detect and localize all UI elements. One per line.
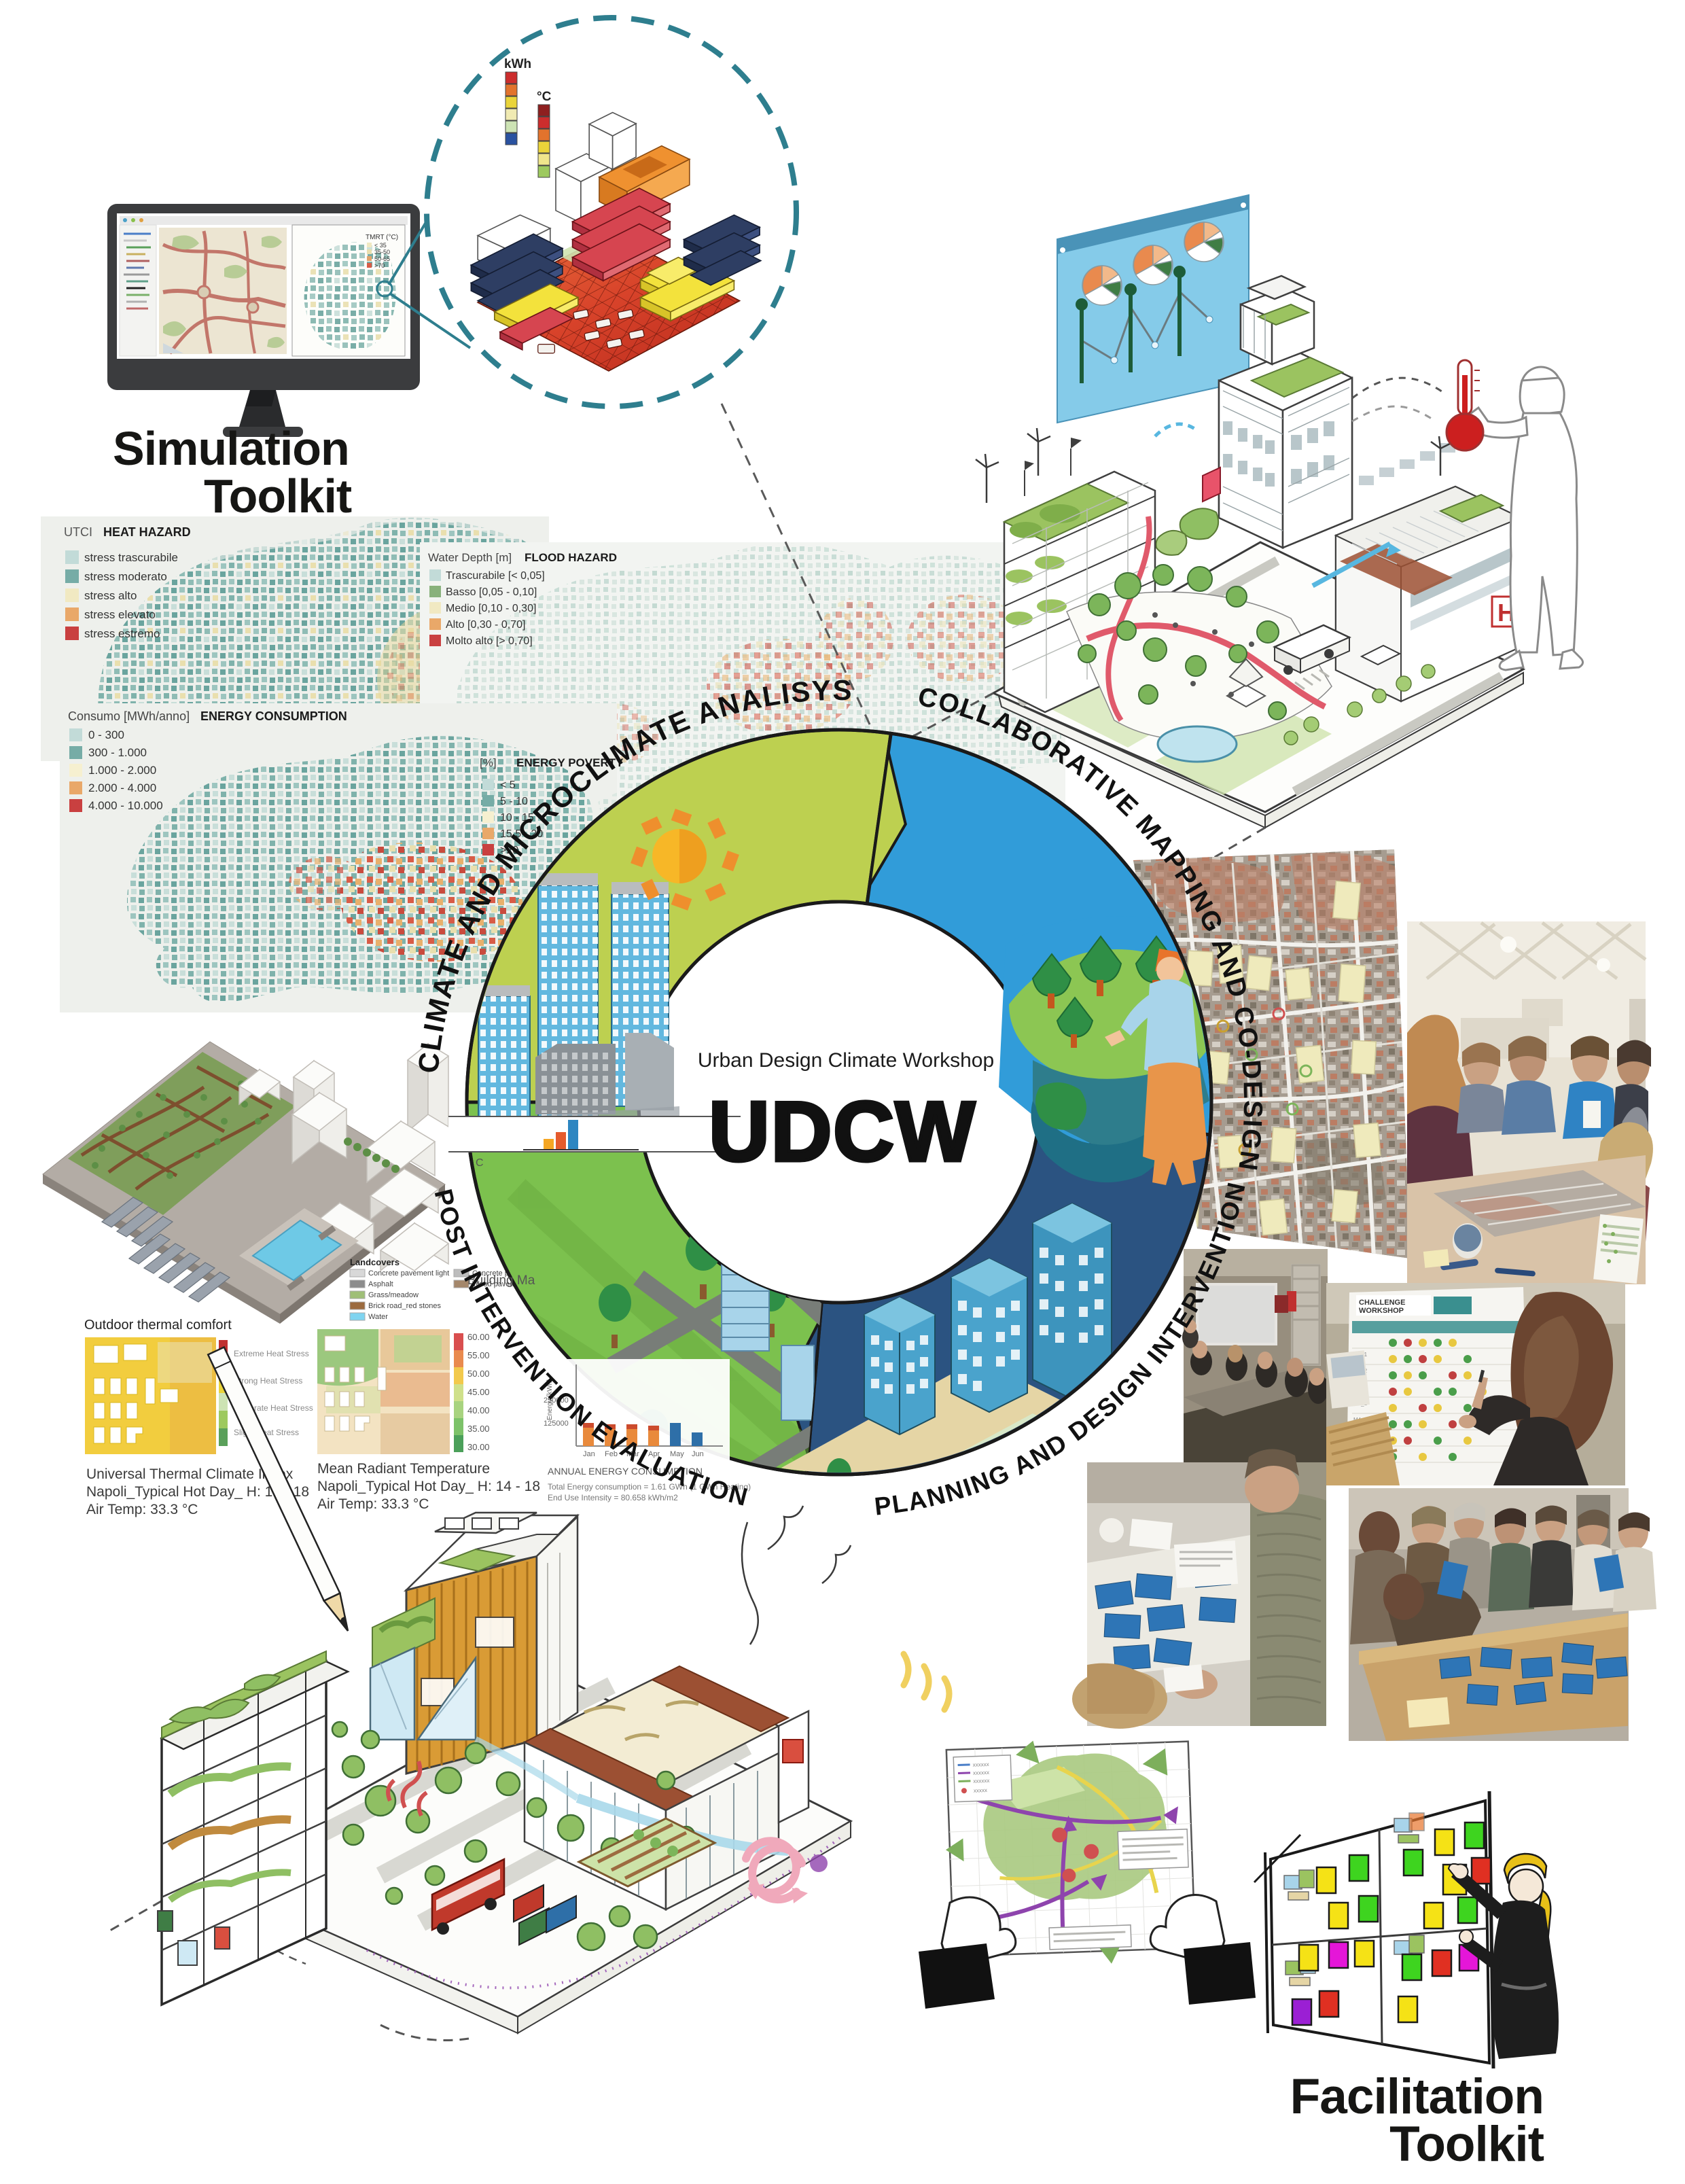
svg-text:ENERGY CONSUMPTION: ENERGY CONSUMPTION (200, 709, 347, 723)
svg-text:UTCI: UTCI (64, 525, 92, 539)
svg-text:Concrete pavement light: Concrete pavement light (368, 1269, 449, 1278)
svg-text:stress estremo: stress estremo (84, 627, 160, 640)
svg-text:60.00: 60.00 (467, 1332, 490, 1342)
svg-text:xxxxx: xxxxx (974, 1787, 987, 1794)
svg-text:Facilitation: Facilitation (1290, 2069, 1544, 2124)
svg-text:Alto [0,30 - 0,70]: Alto [0,30 - 0,70] (446, 619, 525, 631)
svg-text:Outdoor thermal comfort: Outdoor thermal comfort (84, 1318, 232, 1333)
svg-text:xxxxxx: xxxxxx (973, 1778, 989, 1784)
svg-text:55.00: 55.00 (467, 1350, 490, 1360)
svg-text:Mean Radiant Temperature: Mean Radiant Temperature (317, 1461, 490, 1477)
svg-text:TMRT (°C): TMRT (°C) (366, 234, 398, 241)
svg-text:Water: Water (368, 1313, 388, 1321)
svg-text:stress elevato: stress elevato (84, 608, 156, 621)
svg-text:Brick road_red stones: Brick road_red stones (368, 1302, 441, 1310)
svg-text:300 - 1.000: 300 - 1.000 (88, 746, 147, 759)
svg-text:Air Temp: 33.3 °C: Air Temp: 33.3 °C (86, 1502, 198, 1517)
svg-text:xxxxxx: xxxxxx (973, 1769, 989, 1776)
svg-text:< 5: < 5 (500, 779, 516, 791)
svg-text:50.00: 50.00 (467, 1369, 490, 1379)
svg-text:4.000 - 10.000: 4.000 - 10.000 (88, 799, 163, 812)
svg-text:[%]: [%] (480, 756, 497, 769)
svg-text:kWh: kWh (504, 57, 531, 71)
svg-text:45.00: 45.00 (467, 1387, 490, 1397)
svg-text:°C: °C (537, 90, 552, 104)
svg-text:Simulation: Simulation (113, 422, 349, 475)
svg-text:Basso [0,05 - 0,10]: Basso [0,05 - 0,10] (446, 586, 537, 598)
svg-text:Air Temp: 33.3 °C: Air Temp: 33.3 °C (317, 1496, 429, 1512)
svg-text:Trascurabile [< 0,05]: Trascurabile [< 0,05] (446, 570, 545, 582)
svg-text:UDCW: UDCW (709, 1085, 976, 1179)
svg-text:Strong Heat Stress: Strong Heat Stress (234, 1376, 302, 1386)
svg-text:2.000 - 4.000: 2.000 - 4.000 (88, 781, 156, 794)
svg-text:0 - 300: 0 - 300 (88, 728, 124, 741)
svg-text:CHALLENGE: CHALLENGE (1359, 1299, 1405, 1307)
svg-text:xxxxxx: xxxxxx (972, 1761, 989, 1768)
svg-text:Water Depth [m]: Water Depth [m] (428, 551, 512, 564)
svg-text:Grass/meadow: Grass/meadow (368, 1291, 419, 1299)
svg-text:35.00: 35.00 (467, 1424, 490, 1434)
svg-text:Jan: Jan (583, 1450, 595, 1458)
svg-text:stress trascurabile: stress trascurabile (84, 551, 178, 564)
svg-text:Consumo [MWh/anno]: Consumo [MWh/anno] (68, 709, 190, 723)
svg-text:Jun: Jun (692, 1450, 704, 1458)
svg-text:Medio [0,10 - 0,30]: Medio [0,10 - 0,30] (446, 603, 536, 614)
svg-text:Toolkit: Toolkit (204, 470, 352, 523)
svg-text:HEAT HAZARD: HEAT HAZARD (103, 525, 191, 539)
svg-text:Extreme Heat Stress: Extreme Heat Stress (234, 1349, 309, 1358)
svg-text:5 - 10: 5 - 10 (500, 796, 528, 807)
svg-text:End Use Intensity = 80.658 kWh: End Use Intensity = 80.658 kWh/m2 (548, 1493, 678, 1502)
svg-text:Toolkit: Toolkit (1389, 2117, 1544, 2172)
svg-text:stress alto: stress alto (84, 589, 137, 602)
svg-text:50-65: 50-65 (374, 256, 390, 262)
svg-text:>70: >70 (374, 262, 385, 269)
svg-text:Urban Design Climate Workshop: Urban Design Climate Workshop (698, 1049, 994, 1072)
svg-text:< 35: < 35 (374, 242, 387, 249)
svg-text:Landcovers: Landcovers (350, 1257, 400, 1267)
svg-text:WORKSHOP: WORKSHOP (1359, 1307, 1404, 1315)
svg-text:FLOOD HAZARD: FLOOD HAZARD (525, 551, 617, 564)
svg-text:Molto alto [> 0,70]: Molto alto [> 0,70] (446, 635, 533, 647)
svg-text:40.00: 40.00 (467, 1405, 490, 1415)
svg-text:30.00: 30.00 (467, 1442, 490, 1452)
svg-text:35-50: 35-50 (374, 249, 390, 256)
svg-text:1.000 - 2.000: 1.000 - 2.000 (88, 764, 156, 777)
svg-text:stress moderato: stress moderato (84, 570, 167, 583)
svg-text:Asphalt: Asphalt (368, 1280, 393, 1288)
svg-text:C: C (476, 1157, 484, 1169)
svg-text:Napoli_Typical Hot Day_ H: 14: Napoli_Typical Hot Day_ H: 14 - 18 (317, 1479, 540, 1494)
